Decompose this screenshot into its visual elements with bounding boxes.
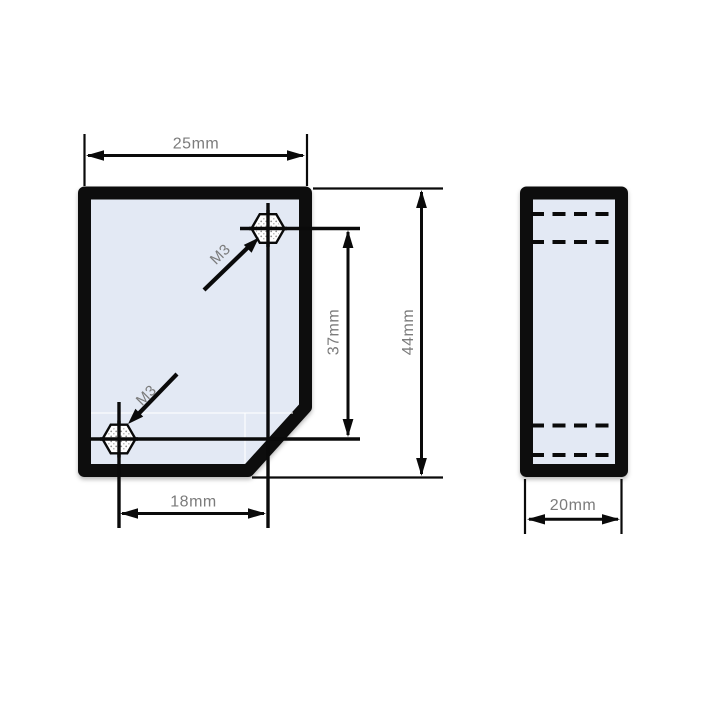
side-view: 20mm [525,193,622,534]
dim-depth-arrow-right-icon [602,514,620,524]
dim-hole-spacing-arrow-bottom-icon [343,419,354,437]
dim-bottom-width-label: 18mm [170,494,216,511]
technical-drawing: M3 M3 25mm 18mm 37mm [0,0,720,720]
dim-hole-spacing-label: 37mm [326,309,343,355]
dim-depth: 20mm [525,479,622,534]
dim-height-arrow-bottom-icon [416,458,427,476]
front-view: M3 M3 25mm 18mm 37mm [85,134,444,528]
dim-hole-spacing-arrow-top-icon [343,230,354,248]
dim-top-width-arrow-left-icon [86,150,104,160]
dim-depth-label: 20mm [550,497,596,514]
dim-depth-arrow-left-icon [527,514,545,524]
dim-bottom-width: 18mm [120,494,266,519]
dim-bottom-width-arrow-left-icon [120,508,138,518]
dim-bottom-width-arrow-right-icon [248,508,266,518]
dim-height-arrow-top-icon [416,190,427,208]
side-view-outline [527,193,622,471]
dim-height-label: 44mm [400,309,417,355]
dim-top-width-label: 25mm [173,136,219,153]
dim-top-width: 25mm [85,134,308,186]
dim-top-width-arrow-right-icon [287,150,305,160]
drawing-canvas: M3 M3 25mm 18mm 37mm [0,0,720,720]
dim-hole-spacing: 37mm [326,230,354,437]
